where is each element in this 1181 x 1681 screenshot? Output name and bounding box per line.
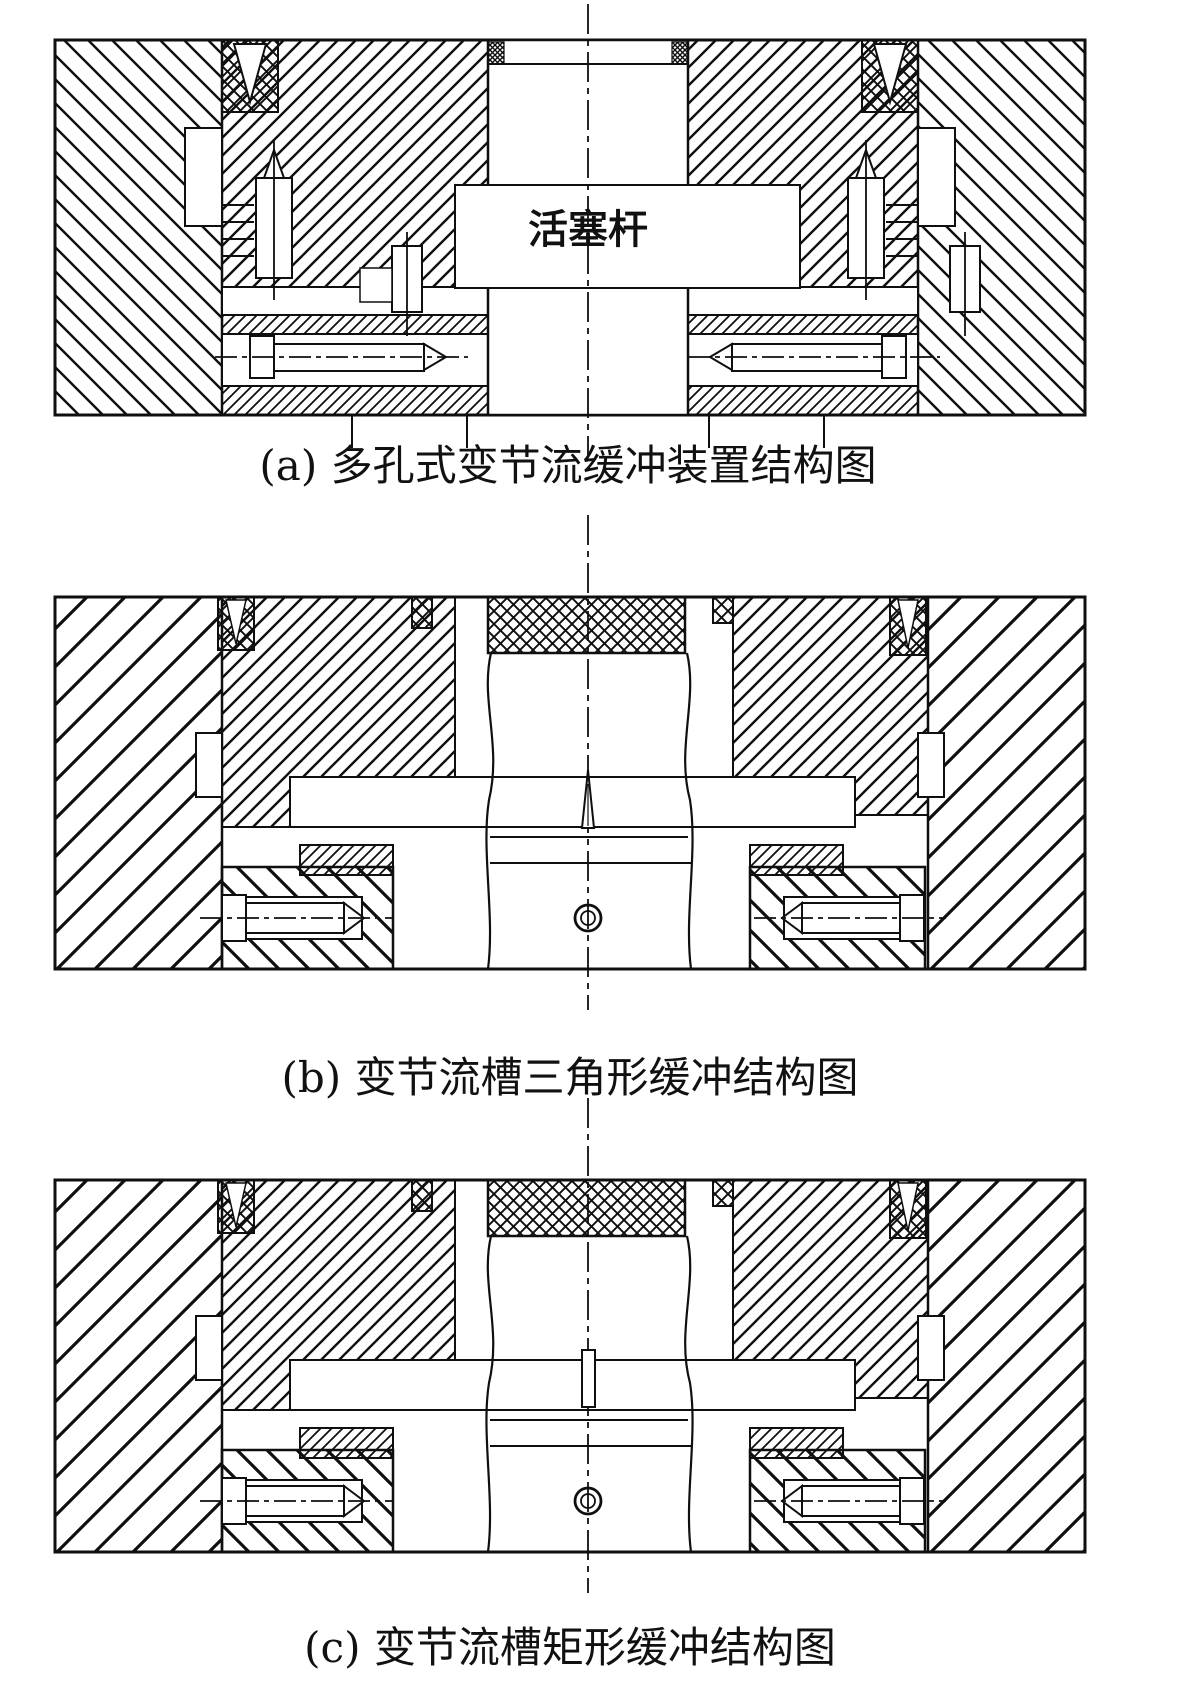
outer-block-left-a xyxy=(55,40,222,415)
caption-c: (c) 变节流槽矩形缓冲结构图 xyxy=(304,1623,836,1672)
caption-b: (b) 变节流槽三角形缓冲结构图 xyxy=(281,1053,858,1102)
figure-a-drawing: 活塞杆 xyxy=(55,4,1085,455)
boss-left-a xyxy=(360,268,392,302)
piston-rod-label: 活塞杆 xyxy=(528,207,648,253)
spring-chamber-left-a xyxy=(185,128,222,226)
spring-chamber-right-a xyxy=(918,128,955,226)
caption-a: (a) 多孔式变节流缓冲装置结构图 xyxy=(259,441,876,490)
figure-c-drawing xyxy=(55,1098,1085,1593)
rect-throttle-groove xyxy=(582,1350,595,1407)
figure-b-drawing xyxy=(55,515,1085,1010)
technical-diagram-page: 活塞杆 (a) 多孔式变节流缓冲装置结构图 (b) 变节流槽三角形缓冲结构图 (… xyxy=(0,0,1181,1681)
outer-block-right-a xyxy=(918,40,1085,415)
rod-seal-ring-right xyxy=(672,42,688,64)
rod-seal-ring-left xyxy=(488,42,504,64)
cushion-device-diagram: 活塞杆 (a) 多孔式变节流缓冲装置结构图 (b) 变节流槽三角形缓冲结构图 (… xyxy=(0,0,1181,1681)
